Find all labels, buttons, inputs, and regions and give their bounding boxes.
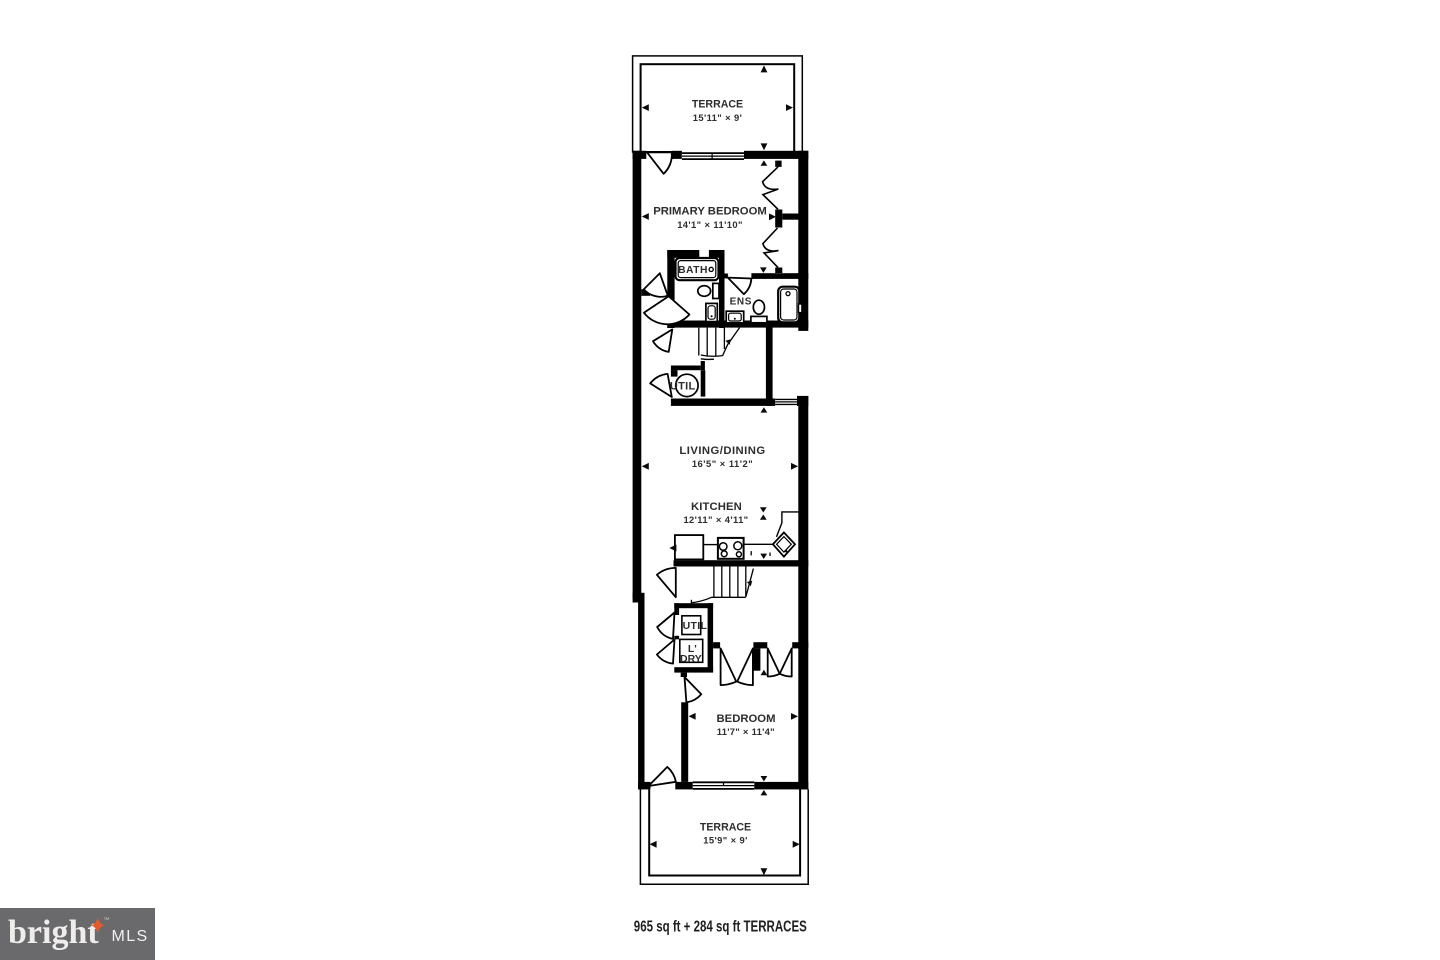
svg-text:LIVING/DINING: LIVING/DINING: [679, 445, 765, 457]
svg-text:UTIL: UTIL: [670, 380, 696, 392]
svg-text:DRY: DRY: [680, 653, 702, 665]
svg-text:UTIL: UTIL: [683, 620, 708, 632]
svg-text:MLS: MLS: [112, 928, 149, 945]
svg-text:15'11" × 9': 15'11" × 9': [693, 112, 743, 123]
svg-text:bright: bright: [8, 914, 99, 951]
svg-text:™: ™: [104, 917, 110, 924]
svg-text:BATH: BATH: [678, 265, 708, 276]
svg-text:965 sq ft + 284 sq ft TERRACES: 965 sq ft + 284 sq ft TERRACES: [634, 918, 807, 935]
svg-text:12'11" × 4'11": 12'11" × 4'11": [683, 514, 748, 525]
svg-text:14'1" × 11'10": 14'1" × 11'10": [677, 219, 743, 230]
svg-text:PRIMARY BEDROOM: PRIMARY BEDROOM: [653, 205, 767, 217]
svg-text:11'7" × 11'4": 11'7" × 11'4": [717, 726, 775, 737]
svg-text:16'5" × 11'2": 16'5" × 11'2": [692, 458, 753, 469]
svg-text:ENS: ENS: [730, 296, 752, 307]
svg-text:BEDROOM: BEDROOM: [717, 713, 776, 725]
svg-text:TERRACE: TERRACE: [692, 98, 743, 110]
svg-text:15'9" × 9': 15'9" × 9': [703, 835, 747, 846]
svg-text:KITCHEN: KITCHEN: [691, 501, 742, 513]
svg-text:TERRACE: TERRACE: [700, 822, 751, 834]
